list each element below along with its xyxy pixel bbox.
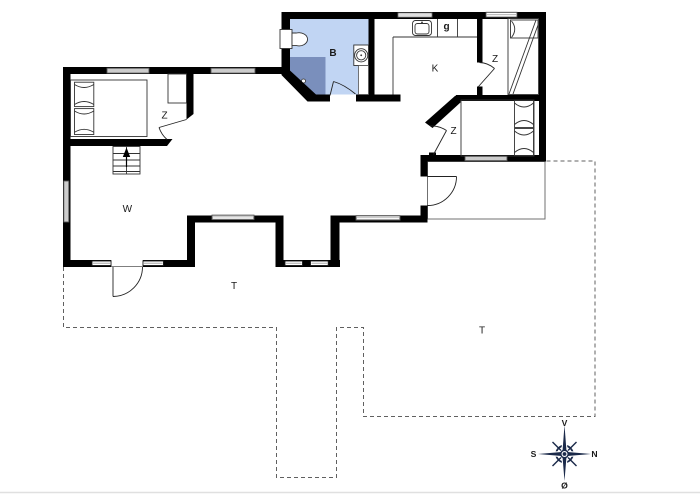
- svg-text:Z: Z: [450, 126, 456, 137]
- svg-text:S: S: [531, 449, 537, 459]
- svg-text:g: g: [443, 21, 449, 32]
- svg-text:W: W: [123, 204, 133, 215]
- svg-text:V: V: [562, 418, 568, 428]
- svg-text:Ø: Ø: [561, 481, 568, 491]
- svg-text:T: T: [479, 325, 485, 336]
- svg-text:N: N: [591, 449, 597, 459]
- svg-text:B: B: [329, 48, 336, 59]
- svg-text:Z: Z: [161, 111, 167, 122]
- svg-text:Z: Z: [492, 54, 498, 65]
- svg-text:T: T: [231, 281, 237, 292]
- svg-text:K: K: [432, 63, 439, 74]
